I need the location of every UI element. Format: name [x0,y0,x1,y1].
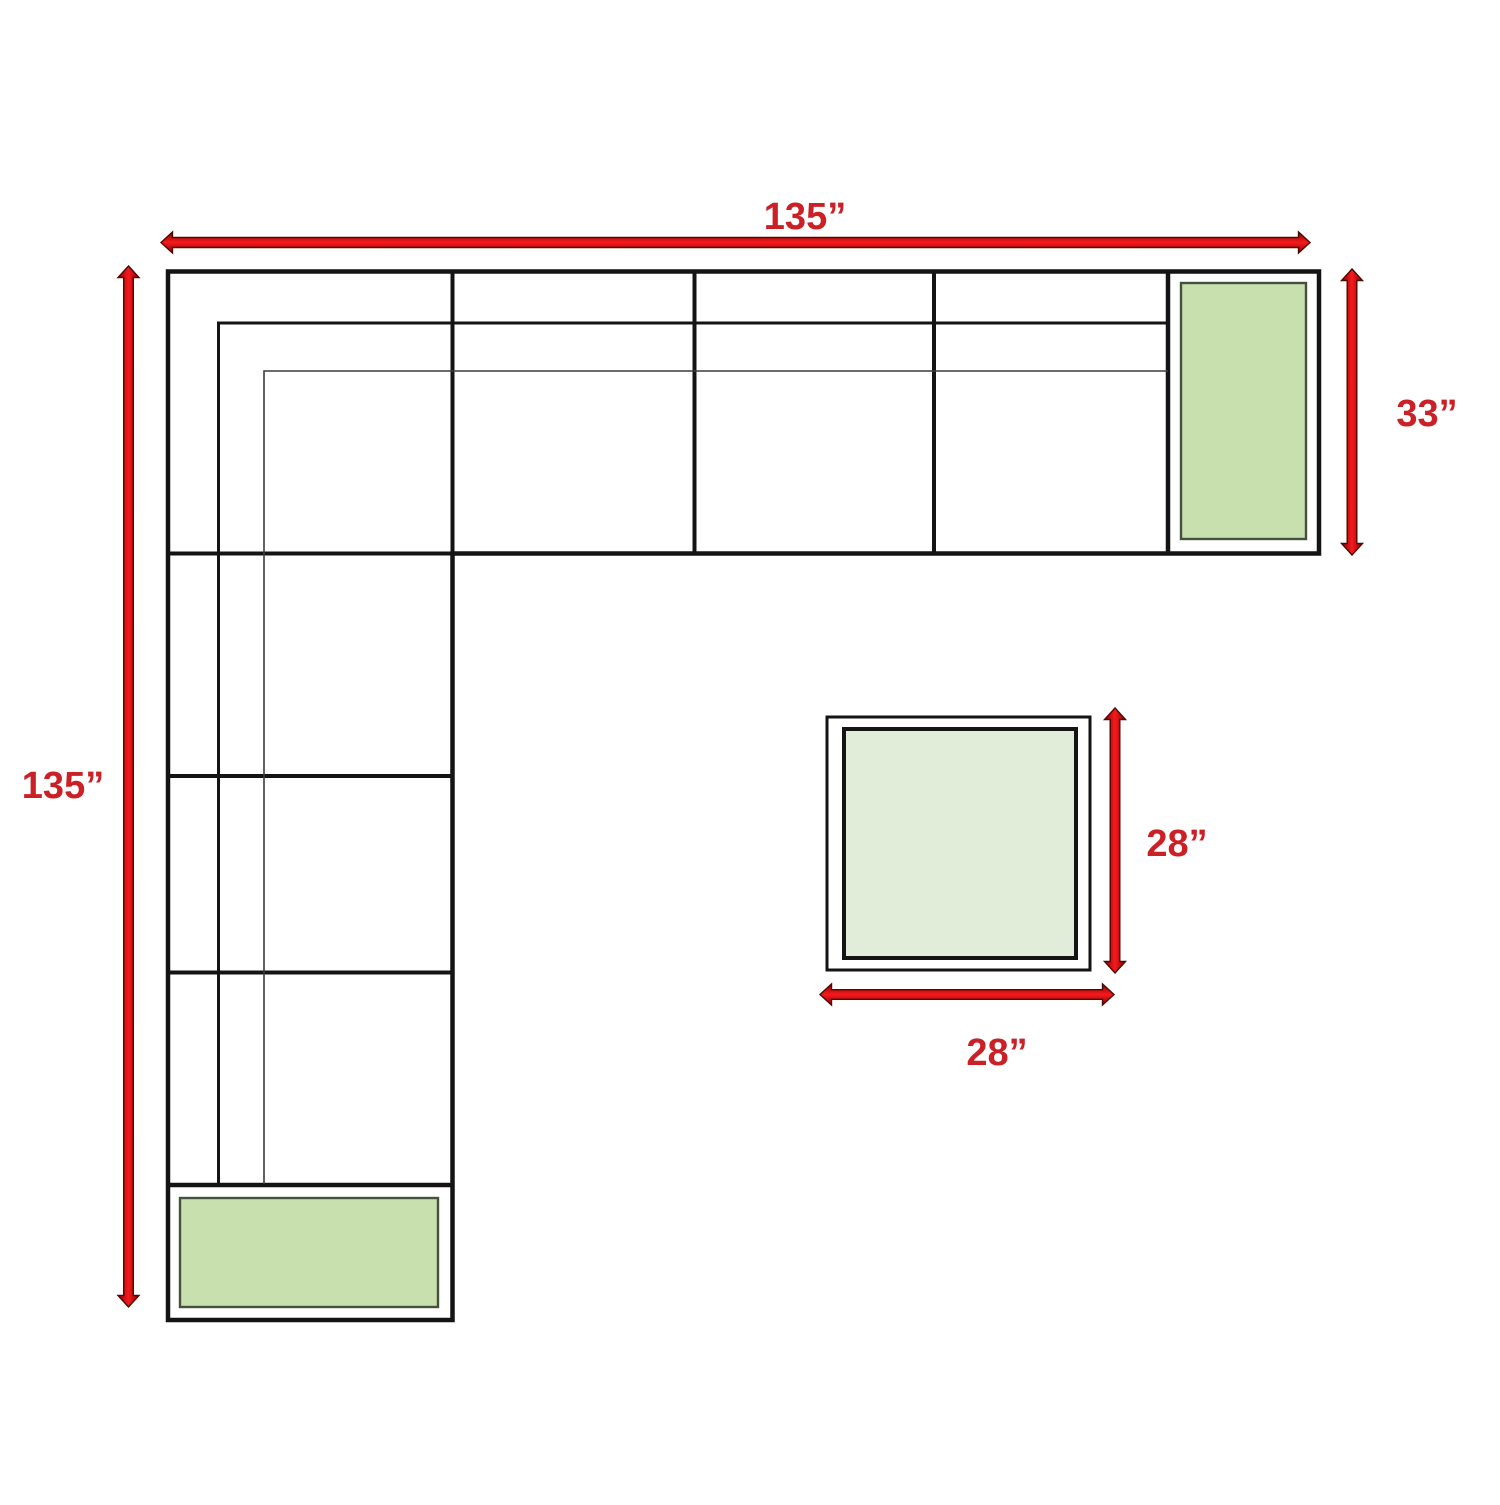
svg-text:135”: 135” [764,196,846,238]
svg-text:28”: 28” [1146,823,1207,865]
svg-text:33”: 33” [1396,393,1457,435]
svg-text:28”: 28” [966,1032,1027,1074]
svg-text:135”: 135” [22,765,104,807]
